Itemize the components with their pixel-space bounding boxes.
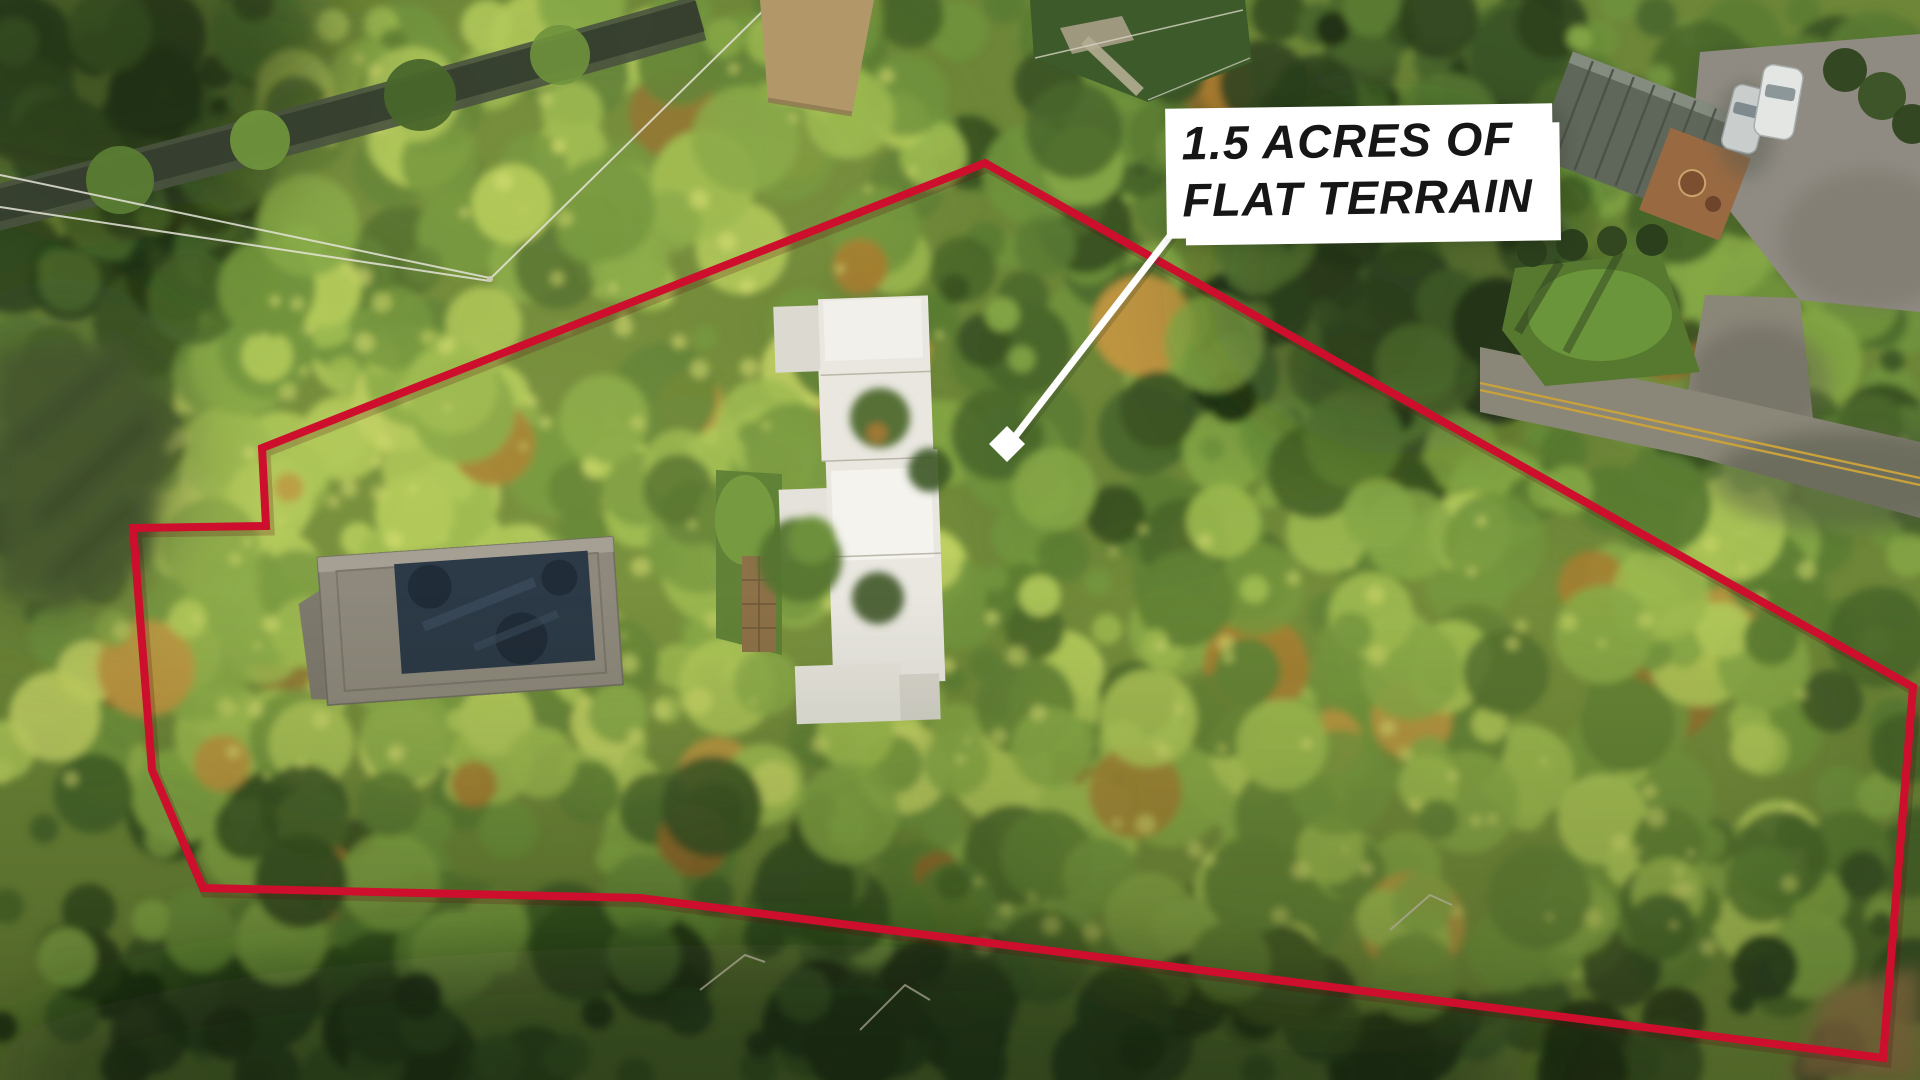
aerial-photo [0,0,1920,1080]
aerial-photo-stage: 1.5 ACRES OF FLAT TERRAIN [0,0,1920,1080]
area-callout-line2: FLAT TERRAIN [1182,167,1533,229]
area-callout-label: 1.5 ACRES OF FLAT TERRAIN [1165,103,1553,238]
vignette [0,0,1920,1080]
area-callout-line1: 1.5 ACRES OF [1181,110,1532,172]
